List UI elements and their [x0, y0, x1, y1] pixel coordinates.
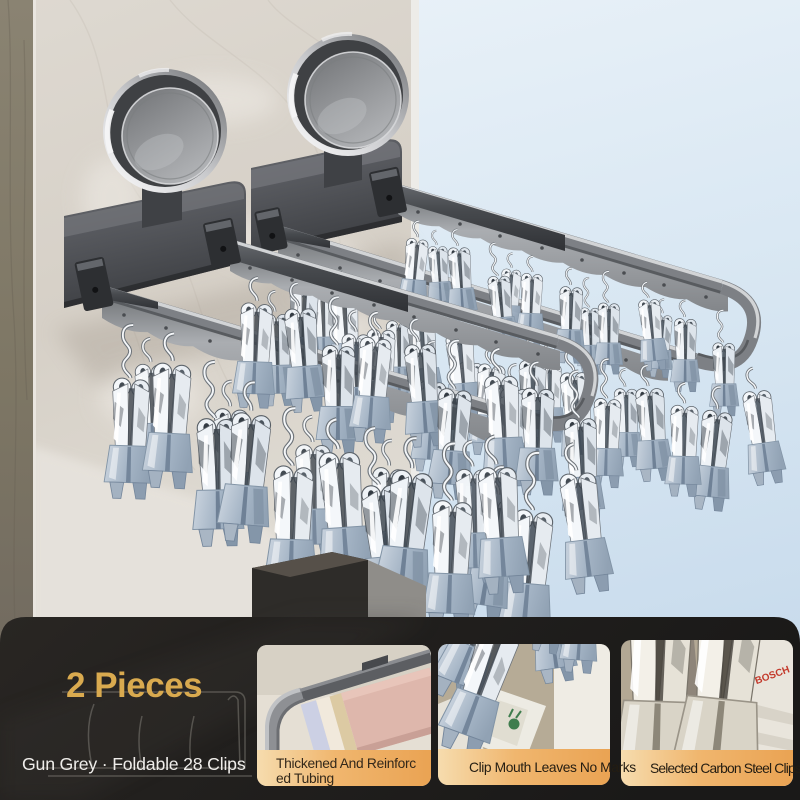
- svg-text:Clip Mouth Leaves No Marks: Clip Mouth Leaves No Marks: [469, 760, 636, 775]
- svg-text:Thickened And Reinforc: Thickened And Reinforc: [276, 756, 416, 771]
- svg-text:ed Tubing: ed Tubing: [276, 771, 334, 786]
- svg-text:2 Pieces: 2 Pieces: [66, 666, 202, 705]
- svg-text:Gun Grey · Foldable 28 Clips: Gun Grey · Foldable 28 Clips: [22, 754, 246, 774]
- svg-text:Selected Carbon Steel Clips: Selected Carbon Steel Clips: [650, 761, 800, 776]
